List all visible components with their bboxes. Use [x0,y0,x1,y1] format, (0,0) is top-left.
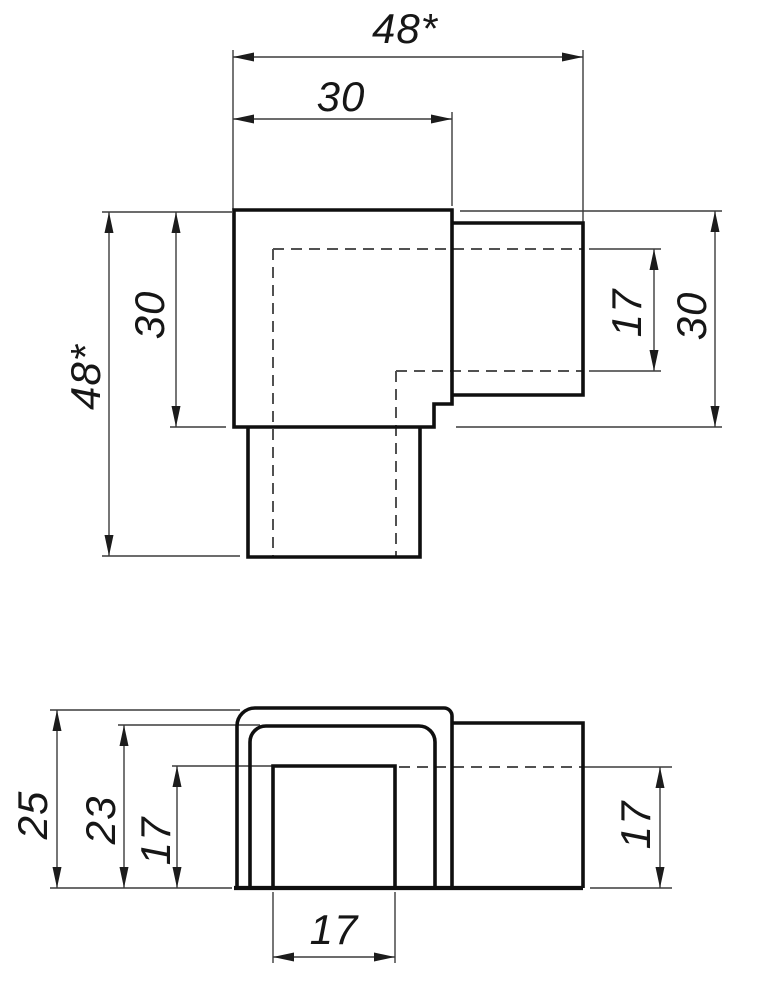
front-view-cap-outer [237,708,452,888]
front-view [234,708,583,888]
arrow-down [120,867,129,888]
dim-label-cap-height: 25 [12,791,54,840]
dim-label-hole-height: 17 [135,817,177,866]
arrow-up [650,249,659,270]
arrow-right [562,53,583,62]
top-view [234,210,583,557]
arrow-down [173,867,182,888]
dim-label-body-width: 30 [317,76,366,118]
arrow-up [173,766,182,787]
arrow-down [711,406,720,427]
hidden-lines [273,249,583,767]
dim-label-socket-inner-front: 17 [615,801,657,850]
arrow-up [172,212,181,233]
arrow-up [656,767,665,788]
top-view-body-outline [234,210,452,427]
arrow-down [172,406,181,427]
arrow-left [233,53,254,62]
arrow-left [273,953,294,962]
arrow-down [656,867,665,888]
dim-label-body-height: 30 [129,291,171,340]
front-view-socket [453,723,583,888]
dim-label-body-height-right: 30 [671,292,713,341]
arrow-down [105,535,114,556]
arrow-left [233,115,254,124]
dim-label-socket-inner: 17 [606,289,648,338]
dim-label-inner-height: 23 [80,796,122,845]
dim-label-hole-width: 17 [310,909,359,951]
arrow-right [374,953,395,962]
arrow-up [53,710,62,731]
front-view-cap-inner [250,726,435,888]
arrow-down [650,350,659,371]
arrow-up [711,211,720,232]
dim-label-overall-width: 48* [372,8,438,50]
arrow-up [120,725,129,746]
dim-label-overall-height: 48* [65,344,107,410]
drawing-sheet: 48* 30 48* 30 17 30 25 23 17 17 17 [0,0,779,986]
arrow-up [105,212,114,233]
arrow-right [431,115,452,124]
arrow-down [53,867,62,888]
front-view-hole [273,766,395,888]
